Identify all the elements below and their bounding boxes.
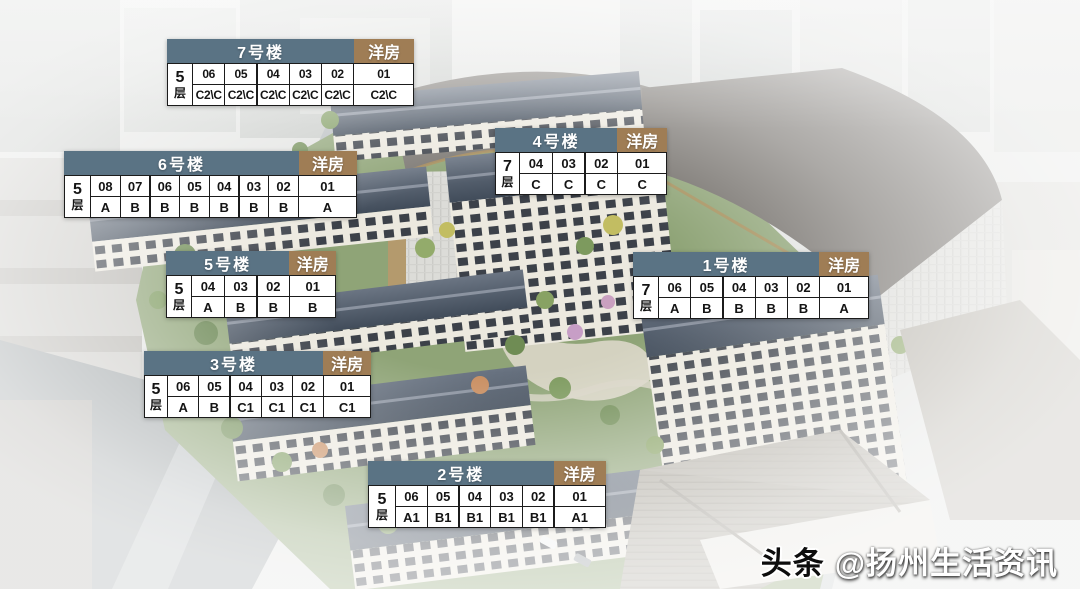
building-name: 4号楼	[495, 128, 617, 152]
unit-type-cell: A1	[555, 507, 605, 527]
floor-count: 5层	[369, 486, 395, 527]
building-table-b4: 4号楼洋房7层04030201CCCC	[495, 128, 667, 195]
unit-type-cell: B	[199, 397, 229, 417]
unit-number-cell: 06	[151, 176, 180, 196]
unit-number-cell: 02	[523, 486, 554, 506]
unit-type-cell: B	[258, 297, 290, 317]
unit-type-cell: C2\C	[258, 85, 289, 105]
unit-type-cell: B1	[460, 507, 491, 527]
building-name: 2号楼	[368, 461, 554, 485]
unit-number-cell: 01	[618, 153, 666, 173]
housing-type-tag: 洋房	[289, 251, 336, 275]
floor-count-suffix: 层	[376, 509, 388, 522]
watermark-account-handle: @扬州生活资讯	[835, 538, 1058, 583]
unit-number-cell: 04	[724, 277, 755, 297]
floor-count-suffix: 层	[501, 176, 513, 189]
floor-count: 5层	[168, 64, 192, 105]
unit-type-cell: A	[168, 397, 198, 417]
unit-number-cell: 03	[491, 486, 522, 506]
unit-type-cell: A1	[396, 507, 427, 527]
building-table-b2: 2号楼洋房5层060504030201A1B1B1B1B1A1	[368, 461, 606, 528]
unit-type-cell: B	[269, 197, 298, 217]
unit-number-cell: 04	[192, 276, 224, 296]
floor-count-number: 5	[152, 382, 161, 399]
housing-type-tag: 洋房	[819, 252, 869, 276]
unit-type-cell: B	[121, 197, 150, 217]
unit-number-cell: 01	[324, 376, 370, 396]
building-table-b3: 3号楼洋房5层060504030201ABC1C1C1C1	[144, 351, 371, 418]
floor-count: 5层	[167, 276, 191, 317]
unit-number-cell: 08	[91, 176, 120, 196]
building-table-b7: 7号楼洋房5层060504030201C2\CC2\CC2\CC2\CC2\CC…	[167, 39, 414, 106]
table-body: 5层04030201ABBB	[166, 275, 336, 318]
floor-count-number: 7	[503, 159, 512, 176]
unit-number-cell: 04	[210, 176, 239, 196]
building-table-b6: 6号楼洋房5层0807060504030201ABBBBBBA	[64, 151, 357, 218]
table-body: 5层0807060504030201ABBBBBBA	[64, 175, 357, 218]
floor-count-number: 5	[378, 492, 387, 509]
housing-type-tag: 洋房	[554, 461, 606, 485]
housing-type-tag: 洋房	[299, 151, 357, 175]
unit-type-cell: B	[691, 298, 722, 318]
table-header: 5号楼洋房	[166, 251, 336, 275]
floor-count-number: 7	[642, 283, 651, 300]
unit-grid: 060504030201C2\CC2\CC2\CC2\CC2\CC2\C	[193, 64, 413, 105]
unit-type-cell: C1	[293, 397, 323, 417]
unit-number-cell: 03	[553, 153, 585, 173]
unit-number-cell: 01	[354, 64, 413, 84]
floor-count-suffix: 层	[640, 300, 652, 313]
building-name: 6号楼	[64, 151, 299, 175]
building-name: 1号楼	[633, 252, 819, 276]
unit-type-cell: C	[618, 174, 666, 194]
table-body: 5层060504030201ABC1C1C1C1	[144, 375, 371, 418]
table-header: 2号楼洋房	[368, 461, 606, 485]
unit-number-cell: 07	[121, 176, 150, 196]
unit-number-cell: 03	[290, 64, 321, 84]
unit-type-cell: C2\C	[193, 85, 224, 105]
floor-count-number: 5	[175, 282, 184, 299]
table-body: 5层060504030201C2\CC2\CC2\CC2\CC2\CC2\C	[167, 63, 414, 106]
unit-number-cell: 04	[231, 376, 261, 396]
housing-type-tag: 洋房	[354, 39, 414, 63]
unit-number-cell: 05	[428, 486, 459, 506]
unit-number-cell: 04	[258, 64, 289, 84]
floor-count: 5层	[65, 176, 90, 217]
unit-type-cell: C2\C	[290, 85, 321, 105]
table-body: 7层060504030201ABBBBA	[633, 276, 869, 319]
unit-number-cell: 02	[586, 153, 618, 173]
table-header: 3号楼洋房	[144, 351, 371, 375]
unit-grid: 060504030201A1B1B1B1B1A1	[396, 486, 604, 527]
unit-number-cell: 06	[193, 64, 224, 84]
unit-number-cell: 05	[225, 64, 256, 84]
unit-grid: 0807060504030201ABBBBBBA	[91, 176, 356, 217]
unit-number-cell: 06	[659, 277, 690, 297]
unit-number-cell: 02	[322, 64, 353, 84]
unit-type-cell: B	[151, 197, 180, 217]
unit-number-cell: 02	[258, 276, 290, 296]
unit-number-cell: 06	[168, 376, 198, 396]
floor-count-number: 5	[176, 70, 185, 87]
unit-type-cell: C1	[231, 397, 261, 417]
unit-type-cell: B	[180, 197, 209, 217]
unit-number-cell: 05	[691, 277, 722, 297]
unit-number-cell: 06	[396, 486, 427, 506]
unit-type-cell: C	[520, 174, 552, 194]
unit-type-cell: B1	[428, 507, 459, 527]
building-name: 5号楼	[166, 251, 289, 275]
unit-type-cell: C	[586, 174, 618, 194]
table-header: 1号楼洋房	[633, 252, 869, 276]
table-body: 7层04030201CCCC	[495, 152, 667, 195]
floor-count-suffix: 层	[71, 199, 83, 212]
table-body: 5层060504030201A1B1B1B1B1A1	[368, 485, 606, 528]
unit-grid: 060504030201ABC1C1C1C1	[168, 376, 370, 417]
unit-type-cell: C1	[262, 397, 292, 417]
unit-type-cell: A	[192, 297, 224, 317]
unit-type-cell: B	[225, 297, 257, 317]
unit-number-cell: 01	[290, 276, 335, 296]
unit-number-cell: 01	[555, 486, 605, 506]
table-header: 4号楼洋房	[495, 128, 667, 152]
table-header: 7号楼洋房	[167, 39, 414, 63]
unit-number-cell: 02	[788, 277, 819, 297]
floor-count-number: 5	[73, 182, 82, 199]
unit-type-cell: B	[240, 197, 269, 217]
unit-number-cell: 01	[820, 277, 868, 297]
unit-type-cell: B	[210, 197, 239, 217]
unit-number-cell: 03	[262, 376, 292, 396]
floor-count: 7层	[634, 277, 658, 318]
unit-type-cell: B1	[523, 507, 554, 527]
unit-type-cell: A	[91, 197, 120, 217]
floor-count: 7层	[496, 153, 519, 194]
unit-type-cell: A	[299, 197, 356, 217]
unit-type-cell: C2\C	[225, 85, 256, 105]
unit-grid: 060504030201ABBBBA	[659, 277, 868, 318]
unit-type-cell: A	[820, 298, 868, 318]
unit-type-cell: C	[553, 174, 585, 194]
unit-number-cell: 04	[520, 153, 552, 173]
unit-type-cell: A	[659, 298, 690, 318]
unit-number-cell: 03	[240, 176, 269, 196]
unit-number-cell: 05	[199, 376, 229, 396]
watermark-brand-logo: 头条	[761, 538, 825, 583]
unit-number-cell: 03	[756, 277, 787, 297]
floor-count-suffix: 层	[174, 87, 186, 100]
table-header: 6号楼洋房	[64, 151, 357, 175]
unit-grid: 04030201CCCC	[520, 153, 666, 194]
unit-number-cell: 02	[269, 176, 298, 196]
promo-aerial-page: 7号楼洋房5层060504030201C2\CC2\CC2\CC2\CC2\CC…	[0, 0, 1080, 589]
floor-count: 5层	[145, 376, 167, 417]
unit-type-cell: B	[756, 298, 787, 318]
building-name: 7号楼	[167, 39, 354, 63]
unit-type-cell: B	[290, 297, 335, 317]
unit-type-cell: B	[724, 298, 755, 318]
unit-type-cell: B1	[491, 507, 522, 527]
watermark: 头条 @扬州生活资讯	[761, 538, 1058, 583]
housing-type-tag: 洋房	[323, 351, 371, 375]
unit-type-cell: C2\C	[354, 85, 413, 105]
building-table-b5: 5号楼洋房5层04030201ABBB	[166, 251, 336, 318]
building-tables-layer: 7号楼洋房5层060504030201C2\CC2\CC2\CC2\CC2\CC…	[0, 0, 1080, 589]
unit-grid: 04030201ABBB	[192, 276, 335, 317]
unit-number-cell: 03	[225, 276, 257, 296]
building-name: 3号楼	[144, 351, 323, 375]
building-table-b1: 1号楼洋房7层060504030201ABBBBA	[633, 252, 869, 319]
unit-type-cell: B	[788, 298, 819, 318]
unit-number-cell: 05	[180, 176, 209, 196]
housing-type-tag: 洋房	[617, 128, 667, 152]
unit-type-cell: C2\C	[322, 85, 353, 105]
unit-type-cell: C1	[324, 397, 370, 417]
floor-count-suffix: 层	[173, 299, 185, 312]
unit-number-cell: 02	[293, 376, 323, 396]
unit-number-cell: 04	[460, 486, 491, 506]
floor-count-suffix: 层	[150, 399, 162, 412]
unit-number-cell: 01	[299, 176, 356, 196]
